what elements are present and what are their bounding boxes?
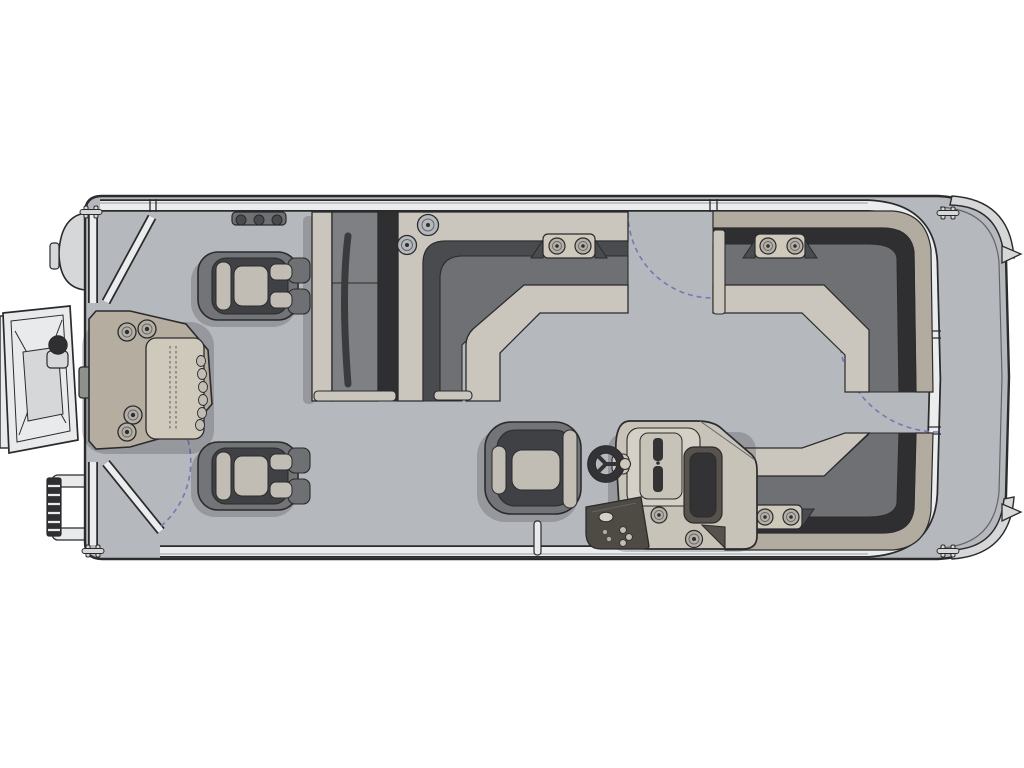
chair-bolster — [563, 430, 577, 508]
bench-end-cap — [314, 391, 396, 401]
lounge-end-cap — [434, 391, 472, 400]
chair-seat — [234, 266, 268, 306]
chair-arm — [270, 264, 292, 280]
switch-pod — [586, 497, 649, 549]
rail-knob-icon — [236, 215, 246, 225]
chair-arm — [270, 292, 292, 308]
chair-backrest — [492, 446, 506, 494]
switch-icon — [620, 527, 627, 534]
bench-cushion — [332, 212, 378, 401]
chair-arm — [270, 454, 292, 470]
gauge-stack — [653, 466, 663, 492]
accessory-rail — [232, 212, 286, 225]
switch-icon — [626, 534, 633, 541]
chair-arm — [270, 482, 292, 498]
bow-boarding-ramp — [0, 306, 78, 453]
lounge-end-cap — [713, 230, 725, 314]
bow-fender — [50, 213, 85, 290]
bench-backrest — [312, 212, 332, 401]
gauge-stack — [653, 438, 663, 461]
bow-fishing-station — [79, 311, 214, 454]
bow-chair-port — [191, 252, 310, 327]
chair-seat — [512, 450, 560, 490]
helm-console — [586, 421, 757, 552]
chair-backrest — [216, 452, 231, 500]
chair-backrest — [216, 262, 231, 310]
keyswitch-icon — [599, 512, 613, 522]
boat-floorplan-canvas — [0, 0, 1024, 768]
rail-knob-icon — [272, 215, 282, 225]
chair-seat — [234, 456, 268, 496]
bow-chair-starboard — [191, 442, 310, 517]
wheel-hub — [620, 459, 631, 470]
lounge-back-shadow — [378, 212, 398, 401]
bench-crease — [345, 236, 349, 384]
ski-tow-post — [534, 521, 541, 555]
helm-chair — [477, 422, 581, 522]
screenshot-root — [0, 0, 1024, 768]
tow-knob — [49, 336, 67, 354]
rail-knob-icon — [254, 215, 264, 225]
fender-tab — [50, 243, 59, 269]
switch-icon — [620, 540, 627, 547]
